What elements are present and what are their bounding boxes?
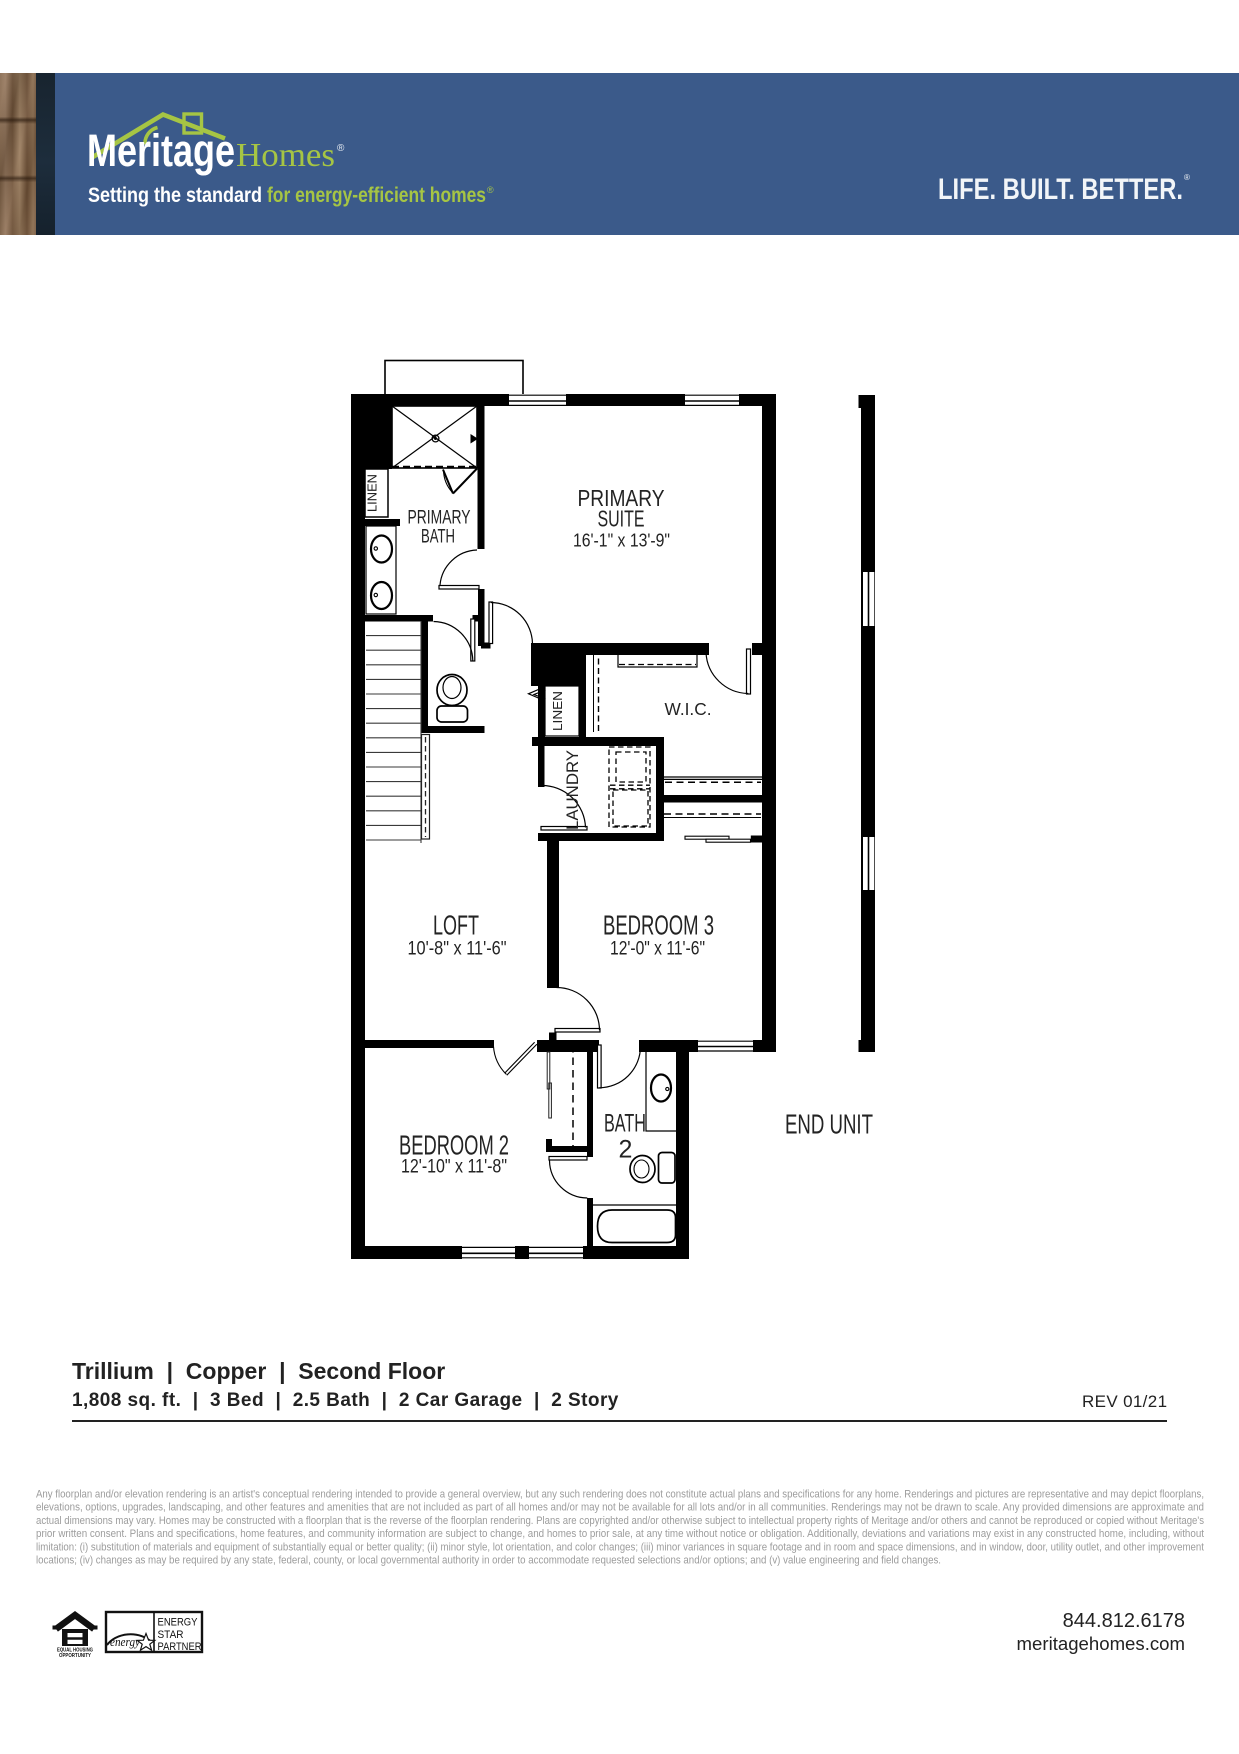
svg-text:PARTNER: PARTNER: [158, 1641, 202, 1653]
svg-text:limitation: (i) substitution o: limitation: (i) substitution of material…: [36, 1541, 1204, 1553]
svg-text:actual dimensions may vary. Ho: actual dimensions may vary. Homes may be…: [36, 1515, 1204, 1527]
svg-text:OPPORTUNITY: OPPORTUNITY: [59, 1653, 92, 1659]
svg-text:locations; (iv) changes as may: locations; (iv) changes as may be requir…: [36, 1555, 941, 1567]
svg-text:elevations, options, upgrades,: elevations, options, upgrades, landscapi…: [36, 1502, 1204, 1514]
svg-text:energy: energy: [110, 1635, 140, 1649]
svg-text:ENERGY: ENERGY: [158, 1617, 199, 1629]
svg-text:STAR: STAR: [158, 1629, 184, 1641]
svg-text:prior written consent. Plans a: prior written consent. Plans and specifi…: [36, 1528, 1204, 1540]
svg-text:Any floorplan and/or elevation: Any floorplan and/or elevation rendering…: [36, 1489, 1204, 1501]
